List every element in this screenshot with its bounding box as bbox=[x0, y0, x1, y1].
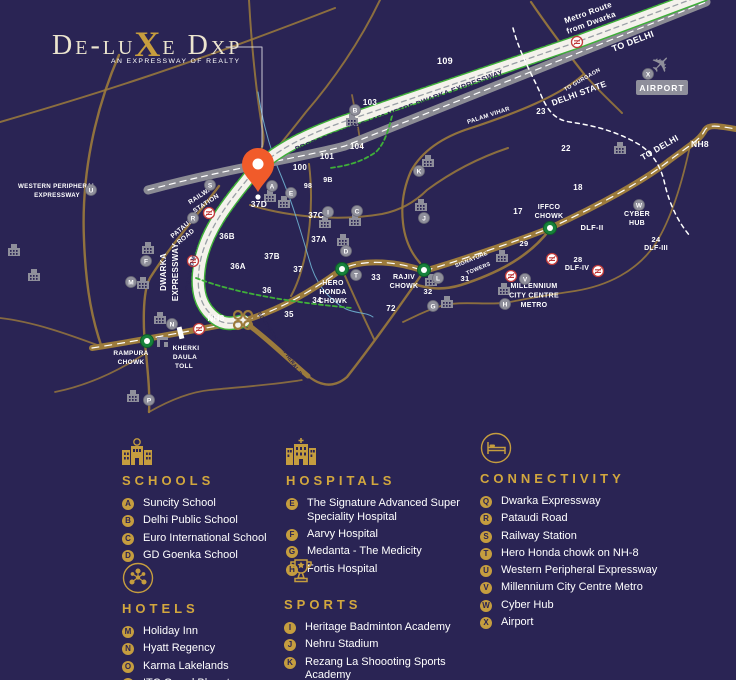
svg-text:B: B bbox=[353, 107, 358, 114]
chowk-node-icon bbox=[418, 264, 431, 277]
svg-text:H: H bbox=[503, 301, 508, 308]
map-label: DLF-IV bbox=[565, 265, 589, 272]
svg-text:E: E bbox=[289, 190, 294, 197]
svg-text:F: F bbox=[144, 258, 148, 265]
legend-item-label: Euro International School bbox=[143, 532, 267, 546]
map-marker-T: T bbox=[351, 270, 362, 281]
map-label: 32 bbox=[424, 287, 433, 296]
trophy-icon bbox=[284, 554, 463, 590]
map-label: 31 bbox=[461, 274, 470, 283]
svg-text:A: A bbox=[270, 183, 275, 190]
map-label: DLF-II bbox=[580, 223, 603, 232]
pin-inner-dot bbox=[253, 159, 264, 170]
map-label: 72 bbox=[386, 304, 396, 313]
legend-item: THero Honda chowk on NH-8 bbox=[480, 547, 657, 561]
map-label: CHOWK bbox=[535, 213, 564, 220]
svg-text:W: W bbox=[636, 202, 643, 209]
map-marker-G: G bbox=[428, 301, 439, 312]
building-icon bbox=[496, 250, 508, 262]
chowk-node-icon bbox=[336, 263, 349, 276]
pin-ground-dot bbox=[255, 194, 260, 199]
map-label: RAMPURA bbox=[113, 350, 148, 357]
map-label: IFFCO bbox=[538, 204, 561, 211]
chowk-node-icon bbox=[141, 335, 154, 348]
map-label: 37C bbox=[308, 211, 324, 220]
legend-item: SRailway Station bbox=[480, 530, 657, 544]
legend-letter-badge: M bbox=[122, 626, 134, 638]
legend-item: BDelhi Public School bbox=[122, 514, 267, 528]
legend-item: RPataudi Road bbox=[480, 512, 657, 526]
legend-letter-badge: I bbox=[284, 622, 296, 634]
map-label: 23 bbox=[536, 107, 546, 116]
map-marker-V: V bbox=[520, 274, 531, 285]
map-marker-I: I bbox=[323, 207, 334, 218]
map-label: 22 bbox=[561, 144, 571, 153]
legend-letter-badge: S bbox=[480, 531, 492, 543]
legend-item: IHeritage Badminton Academy bbox=[284, 621, 463, 635]
svg-text:C: C bbox=[355, 208, 360, 215]
legend-item-label: Railway Station bbox=[501, 530, 577, 544]
legend-title-connectivity: CONNECTIVITY bbox=[480, 471, 657, 486]
metro-station-icon bbox=[506, 271, 517, 282]
building-icon bbox=[154, 312, 166, 324]
map-label: 36A bbox=[230, 262, 246, 271]
legend-item: NHyatt Regency bbox=[122, 642, 230, 656]
map-label: METRO bbox=[521, 302, 548, 309]
legend-section-sports: SPORTSIHeritage Badminton AcademyJNehru … bbox=[284, 554, 463, 680]
map-label: HERO bbox=[322, 280, 344, 287]
svg-text:S: S bbox=[208, 182, 213, 189]
map-label: PROPOSED METRO / 150 METRE DWARKA EXPRES… bbox=[294, 68, 505, 154]
map-label: TOLL bbox=[175, 363, 193, 370]
metro-station-icon bbox=[593, 266, 604, 277]
bed-icon bbox=[480, 428, 657, 464]
school-icon bbox=[122, 430, 267, 466]
svg-text:T: T bbox=[354, 272, 358, 279]
map-label: 109 bbox=[437, 56, 453, 66]
metro-station-icon bbox=[194, 324, 205, 335]
road-bottom bbox=[149, 380, 302, 412]
svg-text:V: V bbox=[523, 276, 528, 283]
map-marker-R: R bbox=[188, 213, 199, 224]
map-label: 33 bbox=[371, 273, 381, 282]
legend-item-label: Hyatt Regency bbox=[143, 642, 215, 656]
legend-letter-badge: O bbox=[122, 661, 134, 673]
legend-section-connectivity: CONNECTIVITYQDwarka ExpresswayRPataudi R… bbox=[480, 428, 657, 633]
building-icon bbox=[127, 390, 139, 402]
legend-item-label: Dwarka Expressway bbox=[501, 495, 601, 509]
road-western-peripheral-expressway bbox=[84, 55, 119, 348]
brand-x-accent: X bbox=[134, 24, 163, 64]
legend-letter-badge: J bbox=[284, 639, 296, 651]
legend-item: MHoliday Inn bbox=[122, 625, 230, 639]
map-label: 36B bbox=[219, 232, 235, 241]
building-icon bbox=[415, 199, 427, 211]
legend-item: VMillennium City Centre Metro bbox=[480, 581, 657, 595]
legend-section-hotels: HOTELSMHoliday InnNHyatt RegencyOKarma L… bbox=[122, 558, 230, 680]
legend-letter-badge: W bbox=[480, 600, 492, 612]
building-icon bbox=[28, 269, 40, 281]
map-label: 37D bbox=[251, 199, 268, 209]
building-icon bbox=[441, 296, 453, 308]
map-label: 18 bbox=[573, 183, 583, 192]
map-page: ✈AIRPORTMetro Routefrom DwarkaTO DELHITO… bbox=[0, 0, 736, 680]
legend-item: FAarvy Hospital bbox=[286, 528, 465, 542]
legend-item: OKarma Lakelands bbox=[122, 660, 230, 674]
map-marker-L: L bbox=[433, 273, 444, 284]
map-marker-P: P bbox=[144, 395, 155, 406]
map-marker-W: W bbox=[634, 200, 645, 211]
legend-letter-badge: N bbox=[122, 643, 134, 655]
map-label: 37 bbox=[293, 265, 303, 274]
map-label: 104 bbox=[350, 142, 364, 151]
svg-text:I: I bbox=[327, 209, 329, 216]
map-marker-J: J bbox=[419, 213, 430, 224]
map-marker-X: X bbox=[643, 69, 654, 80]
legend-letter-badge: X bbox=[480, 617, 492, 629]
svg-text:X: X bbox=[646, 71, 651, 78]
map-label: 101 bbox=[320, 152, 334, 161]
map-label: MILLENNIUM bbox=[511, 283, 558, 290]
legend-title-hotels: HOTELS bbox=[122, 601, 230, 616]
building-icon bbox=[8, 244, 20, 256]
legend-item-label: Suncity School bbox=[143, 497, 216, 511]
map-label: HONDA bbox=[319, 289, 346, 296]
legend-letter-badge: V bbox=[480, 582, 492, 594]
legend-letter-badge: B bbox=[122, 515, 134, 527]
legend-list-connectivity: QDwarka ExpresswayRPataudi RoadSRailway … bbox=[480, 495, 657, 630]
map-marker-S: S bbox=[205, 180, 216, 191]
svg-text:J: J bbox=[422, 215, 426, 222]
legend-item-label: Rezang La Shoooting Sports Academy bbox=[305, 656, 463, 680]
legend-item-label: Nehru Stadium bbox=[305, 638, 378, 652]
toll-booth-icon bbox=[157, 337, 168, 347]
legend-item-label: Aarvy Hospital bbox=[307, 528, 378, 542]
brand-title: De-luXe Dxp bbox=[52, 24, 242, 60]
map-label: 35 bbox=[284, 310, 294, 319]
map-label: NH8 bbox=[691, 139, 709, 149]
map-label: 103 bbox=[363, 98, 377, 107]
legend-list-schools: ASuncity SchoolBDelhi Public SchoolCEuro… bbox=[122, 497, 267, 563]
airport-label: AIRPORT bbox=[639, 83, 684, 93]
legend-item-label: Delhi Public School bbox=[143, 514, 238, 528]
map-label: HUB bbox=[629, 220, 645, 227]
svg-text:G: G bbox=[430, 303, 435, 310]
legend-item-label: Holiday Inn bbox=[143, 625, 198, 639]
road-bottom-left-1 bbox=[0, 318, 100, 346]
legend-letter-badge: T bbox=[480, 548, 492, 560]
legend-letter-badge: U bbox=[480, 565, 492, 577]
legend-item: KRezang La Shoooting Sports Academy bbox=[284, 656, 463, 680]
legend-letter-badge: C bbox=[122, 533, 134, 545]
legend-letter-badge: K bbox=[284, 657, 296, 669]
map-label: 36 bbox=[262, 286, 272, 295]
legend-item-label: Hero Honda chowk on NH-8 bbox=[501, 547, 639, 561]
map-marker-C: C bbox=[352, 206, 363, 217]
legend-item: CEuro International School bbox=[122, 532, 267, 546]
map-label: CITY CENTRE bbox=[509, 293, 559, 300]
legend-item: EThe Signature Advanced Super Speciality… bbox=[286, 497, 465, 525]
map-label: EXPRESSWAY bbox=[34, 192, 80, 199]
map-label: 37B bbox=[264, 252, 280, 261]
legend-item-label: Heritage Badminton Academy bbox=[305, 621, 451, 635]
map-label: CHOWK bbox=[118, 359, 145, 366]
legend-item-label: The Signature Advanced Super Speciality … bbox=[307, 497, 465, 525]
map-label: CYBER bbox=[624, 211, 650, 218]
svg-text:M: M bbox=[128, 279, 133, 286]
svg-text:U: U bbox=[89, 187, 94, 194]
map-label: DAULA bbox=[173, 354, 197, 361]
map-label: WESTERN PERIPHERAL bbox=[18, 183, 96, 190]
map-marker-K: K bbox=[414, 166, 425, 177]
legend-letter-badge: A bbox=[122, 498, 134, 510]
legend-list-hotels: MHoliday InnNHyatt RegencyOKarma Lakelan… bbox=[122, 625, 230, 680]
metro-station-icon bbox=[204, 208, 215, 219]
map-label: 24 bbox=[652, 235, 661, 244]
map-label: 37A bbox=[311, 235, 327, 244]
brand-logo: De-luXe Dxp AN EXPRESSWAY OF REALTY bbox=[52, 24, 242, 65]
map-label: 98 bbox=[304, 183, 312, 190]
svg-text:L: L bbox=[436, 275, 440, 282]
road-minor-north-1 bbox=[249, 0, 264, 164]
legend-item-label: Cyber Hub bbox=[501, 599, 554, 613]
legend-item-label: Karma Lakelands bbox=[143, 660, 229, 674]
building-icon bbox=[142, 242, 154, 254]
chowk-node-icon bbox=[544, 222, 557, 235]
metro-station-icon bbox=[572, 37, 583, 48]
legend-letter-badge: Q bbox=[480, 496, 492, 508]
map-label: 34 bbox=[312, 296, 322, 305]
map-marker-M: M bbox=[126, 277, 137, 288]
map-marker-B: B bbox=[350, 105, 361, 116]
legend-title-schools: SCHOOLS bbox=[122, 473, 267, 488]
legend-list-sports: IHeritage Badminton AcademyJNehru Stadiu… bbox=[284, 621, 463, 680]
svg-text:R: R bbox=[191, 215, 196, 222]
map-marker-A: A bbox=[267, 181, 278, 192]
legend-item: WCyber Hub bbox=[480, 599, 657, 613]
map-marker-E: E bbox=[286, 188, 297, 199]
map-label: CHOWK bbox=[390, 283, 419, 290]
svg-text:K: K bbox=[417, 168, 422, 175]
map-label: DWARKA bbox=[159, 253, 168, 291]
svg-text:D: D bbox=[344, 248, 349, 255]
building-icon bbox=[614, 142, 626, 154]
legend-title-sports: SPORTS bbox=[284, 597, 463, 612]
legend-item-label: Western Peripheral Expressway bbox=[501, 564, 657, 578]
legend-letter-badge: E bbox=[286, 498, 298, 510]
map-label: DLF-III bbox=[644, 245, 668, 252]
map-marker-U: U bbox=[86, 185, 97, 196]
legend-letter-badge: F bbox=[286, 529, 298, 541]
metro-station-icon bbox=[547, 254, 558, 265]
map-marker-F: F bbox=[141, 256, 152, 267]
hospital-icon bbox=[286, 430, 465, 466]
map-label: 29 bbox=[520, 239, 529, 248]
map-label: KHERKI bbox=[173, 345, 200, 352]
building-icon bbox=[337, 234, 349, 246]
legend-section-schools: SCHOOLSASuncity SchoolBDelhi Public Scho… bbox=[122, 430, 267, 566]
map-label: RAJIV bbox=[393, 274, 415, 281]
map-label: 100 bbox=[293, 163, 307, 172]
map-label: SOUTHERN PERIPHERAL ROAD bbox=[256, 311, 310, 387]
map-marker-D: D bbox=[341, 246, 352, 257]
legend-item-label: Pataudi Road bbox=[501, 512, 568, 526]
legend-title-hospitals: HOSPITALS bbox=[286, 473, 465, 488]
map-marker-N: N bbox=[167, 319, 178, 330]
network-icon bbox=[122, 558, 230, 594]
legend-item-label: Airport bbox=[501, 616, 533, 630]
map-marker-H: H bbox=[500, 299, 511, 310]
legend-item-label: Millennium City Centre Metro bbox=[501, 581, 643, 595]
svg-text:P: P bbox=[147, 397, 152, 404]
map-label: NH8 bbox=[208, 314, 225, 323]
map-label: 28 bbox=[574, 255, 583, 264]
map-label: 9B bbox=[323, 177, 333, 184]
legend-item: ASuncity School bbox=[122, 497, 267, 511]
legend-item: QDwarka Expressway bbox=[480, 495, 657, 509]
legend-item: JNehru Stadium bbox=[284, 638, 463, 652]
map-label: EXPRESSWAY bbox=[171, 242, 180, 301]
building-icon bbox=[137, 277, 149, 289]
legend-letter-badge: R bbox=[480, 513, 492, 525]
map-label: CHOWK bbox=[319, 298, 348, 305]
svg-text:N: N bbox=[170, 321, 175, 328]
map-label: 17 bbox=[513, 207, 523, 216]
building-icon bbox=[422, 155, 434, 167]
legend-item: XAirport bbox=[480, 616, 657, 630]
legend-item: UWestern Peripheral Expressway bbox=[480, 564, 657, 578]
